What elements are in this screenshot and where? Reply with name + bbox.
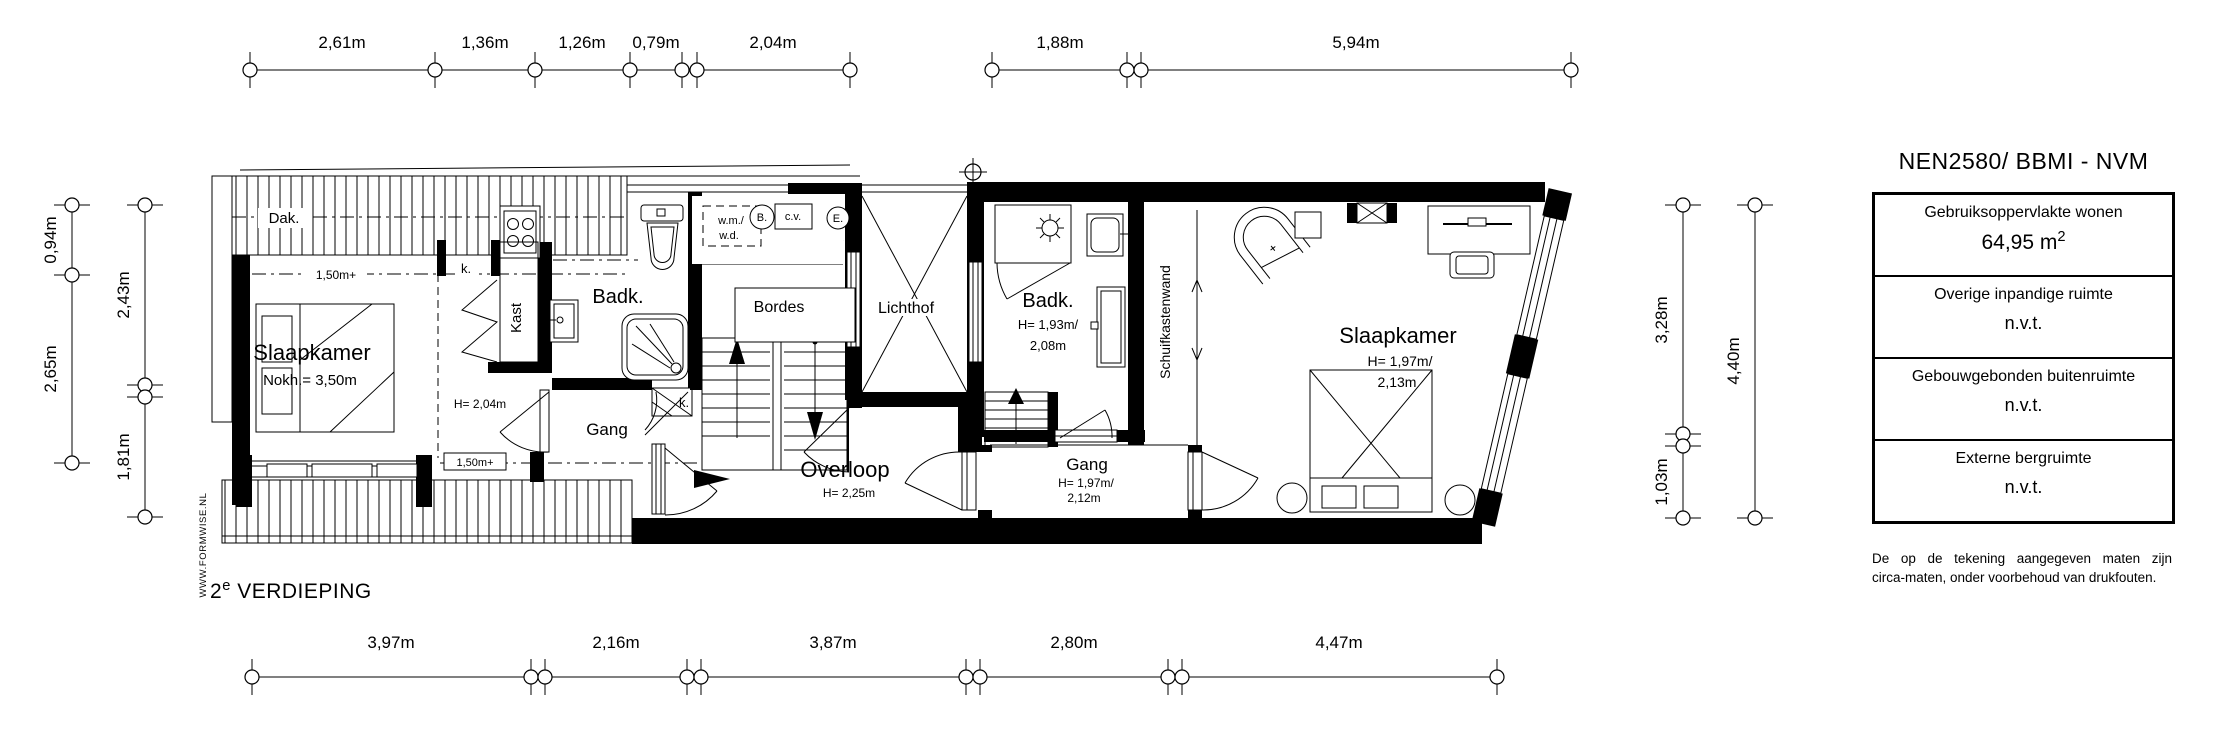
toilet-icon [638, 203, 684, 270]
ridge-height-label: 1,50m+ [316, 268, 356, 282]
dim-label: 2,16m [592, 633, 639, 652]
dim-label: 0,94m [41, 216, 60, 263]
dim-label: 2,04m [749, 33, 796, 52]
room-note: H= 2,25m [823, 486, 875, 500]
dim-label: 0,79m [632, 33, 679, 52]
row-label: Overige inpandige ruimte [1875, 277, 2172, 304]
dim-label: 3,28m [1652, 296, 1671, 343]
room-label-kast: Kast [508, 302, 525, 333]
room-note: 2,12m [1067, 491, 1100, 505]
dim-label: 1,88m [1036, 33, 1083, 52]
dim-label: 5,94m [1332, 33, 1379, 52]
closet-label: k. [461, 261, 471, 276]
skylight-icon [500, 206, 540, 258]
lichthof-shaft [847, 158, 987, 392]
stair-down-arrow-icon [1008, 388, 1024, 404]
cv-label: c.v. [785, 211, 801, 223]
table-row: Gebouwgebonden buitenruimte n.v.t. [1875, 357, 2172, 439]
room-note: Nokh.= 3,50m [263, 372, 357, 389]
dim-label: 1,26m [558, 33, 605, 52]
disclaimer-line: circa-maten, onder voorbehoud van drukfo… [1872, 568, 2172, 587]
watermark: WWW.FORMWISE.NL [198, 492, 209, 597]
disclaimer: De op de tekening aangegeven maten zijn … [1872, 549, 2172, 587]
row-label: Externe bergruimte [1875, 441, 2172, 468]
room-label-lichthof: Lichthof [878, 300, 935, 317]
side-table [1295, 212, 1321, 238]
room-label-gang-right: Gang [1066, 455, 1108, 474]
bed-right [1310, 370, 1432, 512]
row-value: n.v.t. [1875, 386, 2172, 416]
row-value: 64,95 m2 [1875, 222, 2172, 255]
room-label-badk-right: Badk. [1022, 290, 1073, 312]
row-value: n.v.t. [1875, 304, 2172, 334]
dak-label: Dak. [269, 210, 300, 227]
dim-label: 1,81m [114, 433, 133, 480]
dim-label: 1,03m [1652, 458, 1671, 505]
room-note: H= 1,97m/ [1058, 476, 1114, 490]
room-label-slaapkamer-right: Slaapkamer [1339, 323, 1456, 348]
room-note: 2,13m [1378, 374, 1417, 390]
disclaimer-line: De op de tekening aangegeven maten zijn [1872, 549, 2172, 568]
dim-label: 2,43m [114, 271, 133, 318]
dim-label: 3,97m [367, 633, 414, 652]
floorplan-sheet: 2,61m 1,36m 1,26m 0,79m 2,04m 1,88m 5,94… [0, 0, 2221, 741]
room-label-badk-left: Badk. [592, 286, 643, 308]
legend-title: NEN2580/ BBMI - NVM [1872, 148, 2175, 175]
row-value: n.v.t. [1875, 468, 2172, 498]
shower-icon [622, 314, 688, 380]
shower-cabin [995, 205, 1071, 263]
table-row: Overige inpandige ruimte n.v.t. [1875, 275, 2172, 357]
table-row: Gebruiksoppervlakte wonen 64,95 m2 [1875, 195, 2172, 275]
room-label-overloop: Overloop [800, 457, 889, 482]
entry-arrow-icon [694, 470, 730, 488]
nen2580-table: Gebruiksoppervlakte wonen 64,95 m2 Overi… [1872, 192, 2175, 524]
stool-icon [1277, 483, 1307, 513]
room-label-bordes: Bordes [754, 299, 805, 316]
electric-label: E. [833, 213, 843, 225]
dim-label: 2,80m [1050, 633, 1097, 652]
armchair-icon [1222, 195, 1310, 284]
roof-window-icon [1357, 203, 1387, 223]
height-note: H= 2,04m [454, 397, 506, 411]
room-note: 2,08m [1030, 338, 1066, 353]
room-label-schuifkastenwand: Schuifkastenwand [1157, 265, 1173, 379]
desk-icon [1428, 206, 1530, 278]
dryer-label: w.d. [718, 230, 739, 242]
dim-label: 3,87m [809, 633, 856, 652]
room-label-slaapkamer-left: Slaapkamer [253, 340, 370, 365]
table-row: Externe bergruimte n.v.t. [1875, 439, 2172, 521]
stool-icon [1445, 485, 1475, 515]
row-label: Gebouwgebonden buitenruimte [1875, 359, 2172, 386]
row-label: Gebruiksoppervlakte wonen [1875, 195, 2172, 222]
room-note: H= 1,97m/ [1368, 353, 1433, 369]
ridge-height-label: 1,50m+ [457, 457, 494, 469]
room-note: H= 1,93m/ [1018, 317, 1079, 332]
dim-label: 4,40m [1724, 337, 1743, 384]
room-label-gang-left: Gang [586, 420, 628, 439]
washer-label: w.m./ [717, 215, 745, 227]
dim-label: 2,65m [41, 345, 60, 392]
sink-icon [1087, 214, 1128, 256]
closet-label: k. [679, 395, 689, 410]
boiler-label: B. [757, 212, 767, 224]
floor-title: 2e VERDIEPING [210, 578, 372, 604]
dim-label: 2,61m [318, 33, 365, 52]
bed-left [256, 304, 394, 432]
toilet2-icon [1091, 287, 1125, 367]
dim-label: 1,36m [461, 33, 508, 52]
dim-label: 4,47m [1315, 633, 1362, 652]
